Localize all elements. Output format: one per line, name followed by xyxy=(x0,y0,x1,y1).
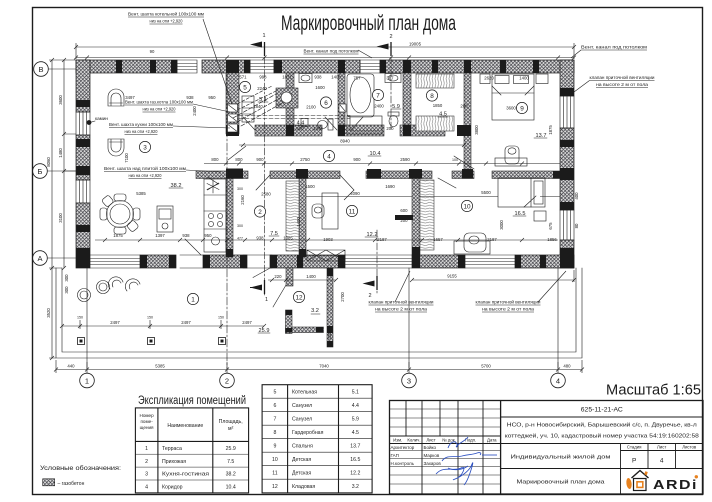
svg-text:3800: 3800 xyxy=(474,125,479,135)
svg-text:1400: 1400 xyxy=(306,274,316,279)
svg-text:1440: 1440 xyxy=(313,126,323,131)
svg-text:3100: 3100 xyxy=(58,213,63,223)
svg-text:3600: 3600 xyxy=(58,95,63,105)
svg-text:7: 7 xyxy=(273,417,276,423)
svg-text:571: 571 xyxy=(239,75,247,80)
svg-text:Масштаб 1:65: Масштаб 1:65 xyxy=(606,383,701,399)
svg-text:Лист: Лист xyxy=(657,445,666,450)
svg-text:НСО, р-н Новосибирский, Барыше: НСО, р-н Новосибирский, Барышевский с/с,… xyxy=(507,422,697,429)
svg-text:камин: камин xyxy=(95,116,108,121)
svg-text:1856: 1856 xyxy=(547,237,557,242)
svg-text:Котельная: Котельная xyxy=(292,390,317,396)
svg-text:4.5: 4.5 xyxy=(439,112,447,118)
svg-text:10.4: 10.4 xyxy=(226,485,236,491)
svg-text:1: 1 xyxy=(145,446,148,452)
svg-text:Листов: Листов xyxy=(682,445,697,450)
svg-text:1600: 1600 xyxy=(315,85,325,90)
svg-text:Вент. шахта над плитой 100х100: Вент. шахта над плитой 100х100 мм xyxy=(104,165,186,171)
svg-text:300: 300 xyxy=(237,187,243,191)
svg-text:800: 800 xyxy=(235,157,243,162)
svg-text:80: 80 xyxy=(574,223,579,228)
svg-text:Кухня-гостиная: Кухня-гостиная xyxy=(162,472,209,478)
svg-text:200: 200 xyxy=(386,126,394,131)
svg-text:11: 11 xyxy=(349,208,356,215)
svg-text:300: 300 xyxy=(237,224,243,228)
svg-text:4.5: 4.5 xyxy=(352,430,359,436)
svg-text:625-11-21-АС: 625-11-21-АС xyxy=(581,407,623,414)
svg-text:90: 90 xyxy=(150,49,155,54)
svg-text:1: 1 xyxy=(85,376,89,385)
svg-text:600: 600 xyxy=(400,208,408,213)
svg-text:Маркировочный план дома: Маркировочный план дома xyxy=(281,12,456,35)
svg-text:2100: 2100 xyxy=(306,105,316,110)
svg-text:Вент. шахта котельной 100х100: Вент. шахта котельной 100х100 мм xyxy=(128,11,204,17)
svg-text:Терраса: Терраса xyxy=(162,446,182,452)
svg-text:200: 200 xyxy=(400,218,408,223)
svg-text:2: 2 xyxy=(258,209,262,216)
svg-text:7100: 7100 xyxy=(124,153,129,163)
svg-text:5.9: 5.9 xyxy=(352,417,359,423)
svg-text:4090: 4090 xyxy=(350,191,360,196)
svg-text:19005: 19005 xyxy=(409,42,422,47)
svg-text:8: 8 xyxy=(273,430,276,436)
svg-text:ARDi: ARDi xyxy=(653,478,698,492)
svg-text:Р: Р xyxy=(632,458,636,465)
svg-text:Захаров: Захаров xyxy=(424,461,442,466)
svg-text:1085: 1085 xyxy=(283,236,293,241)
svg-text:Детская: Детская xyxy=(292,457,311,463)
svg-text:300: 300 xyxy=(64,274,69,282)
svg-text:13.7: 13.7 xyxy=(350,444,360,450)
svg-text:2497: 2497 xyxy=(181,320,191,325)
svg-text:Изм.: Изм. xyxy=(393,438,402,443)
svg-text:387: 387 xyxy=(386,76,394,81)
svg-text:150: 150 xyxy=(218,316,224,320)
svg-text:3000: 3000 xyxy=(499,220,504,230)
svg-text:Дата: Дата xyxy=(487,438,497,443)
svg-text:500: 500 xyxy=(296,126,304,131)
svg-text:В: В xyxy=(38,65,43,74)
svg-text:низ на отм +2,920: низ на отм +2,920 xyxy=(150,19,183,24)
svg-text:2240: 2240 xyxy=(257,86,267,91)
svg-text:низ на отм +2,920: низ на отм +2,920 xyxy=(125,129,158,134)
svg-text:1871: 1871 xyxy=(282,75,292,80)
svg-text:1400: 1400 xyxy=(296,217,301,227)
svg-text:Санузел: Санузел xyxy=(292,403,312,409)
svg-text:4: 4 xyxy=(556,376,560,385)
svg-text:4: 4 xyxy=(145,485,148,491)
svg-text:Б: Б xyxy=(38,167,43,176)
svg-text:на высоте 2 м от пола: на высоте 2 м от пола xyxy=(596,82,648,87)
svg-text:1903: 1903 xyxy=(323,237,333,242)
svg-text:1875: 1875 xyxy=(548,125,553,135)
svg-text:2497: 2497 xyxy=(242,320,252,325)
svg-text:клапан приточной вентиляции: клапан приточной вентиляции xyxy=(590,74,655,80)
svg-text:950: 950 xyxy=(208,95,216,100)
svg-text:– газобетон: – газобетон xyxy=(58,481,85,487)
svg-text:938: 938 xyxy=(256,236,264,241)
svg-text:3: 3 xyxy=(145,472,148,478)
svg-text:7040: 7040 xyxy=(319,364,329,369)
svg-text:9155: 9155 xyxy=(447,274,457,279)
svg-text:2160: 2160 xyxy=(240,195,245,205)
svg-text:3.2: 3.2 xyxy=(352,484,359,490)
svg-text:12: 12 xyxy=(272,484,278,490)
svg-text:1: 1 xyxy=(265,297,268,303)
svg-text:на высоте 2 м от пола: на высоте 2 м от пола xyxy=(482,307,534,312)
svg-text:поме-: поме- xyxy=(140,419,153,424)
svg-text:Кладовая: Кладовая xyxy=(292,484,315,490)
svg-text:480: 480 xyxy=(563,364,571,369)
svg-text:2700: 2700 xyxy=(340,292,345,302)
svg-text:Маркировочный план дома: Маркировочный план дома xyxy=(517,479,605,486)
svg-text:Вент. канал под потолком: Вент. канал под потолком xyxy=(581,45,647,50)
svg-text:2: 2 xyxy=(389,34,392,40)
svg-text:1875: 1875 xyxy=(113,233,123,238)
svg-text:1657: 1657 xyxy=(433,237,443,242)
svg-text:на высоте 2 м от пола: на высоте 2 м от пола xyxy=(375,307,427,312)
svg-text:Лист: Лист xyxy=(426,438,435,443)
svg-text:2: 2 xyxy=(368,293,371,299)
svg-text:900: 900 xyxy=(353,157,361,162)
svg-text:150: 150 xyxy=(77,316,83,320)
svg-text:Спальня: Спальня xyxy=(292,444,313,450)
svg-text:2: 2 xyxy=(145,459,148,465)
svg-text:Прихожая: Прихожая xyxy=(162,459,186,465)
svg-text:клапан приточной вентиляции: клапан приточной вентиляции xyxy=(476,299,541,305)
svg-text:ГАП: ГАП xyxy=(391,453,399,458)
svg-text:м²: м² xyxy=(228,426,234,432)
svg-text:900: 900 xyxy=(256,157,264,162)
svg-text:1480: 1480 xyxy=(58,148,63,158)
svg-text:938: 938 xyxy=(182,233,190,238)
svg-text:А: А xyxy=(37,254,42,263)
svg-text:7.5: 7.5 xyxy=(227,459,234,465)
svg-text:5385: 5385 xyxy=(155,364,165,369)
svg-text:9: 9 xyxy=(273,444,276,450)
svg-text:150: 150 xyxy=(147,316,153,320)
svg-text:2590: 2590 xyxy=(400,157,410,162)
svg-text:9: 9 xyxy=(520,105,524,112)
svg-text:220: 220 xyxy=(274,274,282,279)
svg-text:1840: 1840 xyxy=(253,104,263,109)
svg-text:5.1: 5.1 xyxy=(352,390,359,396)
svg-text:5500: 5500 xyxy=(481,190,491,195)
svg-text:Бойко: Бойко xyxy=(424,444,437,450)
svg-text:Коридор: Коридор xyxy=(162,485,183,491)
svg-text:200: 200 xyxy=(460,104,468,109)
svg-text:4: 4 xyxy=(660,458,664,465)
svg-text:4.4: 4.4 xyxy=(352,403,359,409)
svg-text:1850: 1850 xyxy=(433,103,443,108)
svg-text:Н.контроль: Н.контроль xyxy=(391,461,415,466)
svg-text:5: 5 xyxy=(243,84,247,91)
svg-text:2187: 2187 xyxy=(487,237,497,242)
svg-text:2400: 2400 xyxy=(192,106,197,116)
svg-text:Санузел: Санузел xyxy=(292,417,312,423)
svg-text:477: 477 xyxy=(237,237,243,241)
svg-text:998: 998 xyxy=(259,75,267,80)
svg-text:1: 1 xyxy=(262,33,265,39)
svg-text:2620: 2620 xyxy=(484,76,494,81)
svg-text:12: 12 xyxy=(295,294,303,301)
svg-text:8: 8 xyxy=(430,93,434,100)
svg-text:Марков: Марков xyxy=(424,453,440,458)
svg-text:220: 220 xyxy=(327,332,332,340)
svg-text:25.9: 25.9 xyxy=(226,446,236,452)
svg-text:1397: 1397 xyxy=(155,233,165,238)
svg-text:38.2: 38.2 xyxy=(226,472,236,478)
svg-text:938: 938 xyxy=(314,75,322,80)
svg-text:5385: 5385 xyxy=(136,191,146,196)
svg-text:757: 757 xyxy=(353,76,361,81)
svg-text:3.2: 3.2 xyxy=(311,308,319,314)
svg-text:675: 675 xyxy=(548,222,553,230)
svg-text:11: 11 xyxy=(272,471,277,477)
svg-text:Наименование: Наименование xyxy=(167,423,203,429)
svg-text:440: 440 xyxy=(67,364,75,369)
svg-text:10: 10 xyxy=(272,457,278,463)
svg-text:Гардеробная: Гардеробная xyxy=(292,430,324,436)
svg-text:100: 100 xyxy=(452,158,458,162)
svg-text:1: 1 xyxy=(191,296,195,303)
svg-text:8060: 8060 xyxy=(46,157,51,167)
svg-text:3: 3 xyxy=(143,144,147,151)
svg-text:низ на отм +2,920: низ на отм +2,920 xyxy=(129,173,162,178)
svg-text:Детская: Детская xyxy=(292,471,311,477)
svg-text:2187: 2187 xyxy=(377,237,387,242)
svg-text:1500: 1500 xyxy=(305,184,315,189)
svg-text:6: 6 xyxy=(324,100,328,107)
svg-text:16.5: 16.5 xyxy=(350,457,360,463)
svg-text:клапан приточной вентиляции: клапан приточной вентиляции xyxy=(369,299,434,305)
svg-text:4: 4 xyxy=(327,153,331,160)
svg-text:Вент. канал под потолком: Вент. канал под потолком xyxy=(304,49,359,54)
svg-text:Стадия: Стадия xyxy=(627,445,642,450)
svg-text:3520: 3520 xyxy=(46,308,51,318)
svg-text:щения: щения xyxy=(140,425,154,430)
svg-text:Вент. шахта кухни 100х100 мм: Вент. шахта кухни 100х100 мм xyxy=(109,122,173,127)
svg-text:Условные обозначения:: Условные обозначения: xyxy=(40,464,121,472)
svg-text:950: 950 xyxy=(204,233,212,238)
svg-text:Колич.: Колич. xyxy=(407,438,420,443)
svg-text:1690: 1690 xyxy=(385,184,395,189)
svg-text:Вент. шахта газ.котла 100х100: Вент. шахта газ.котла 100х100 мм xyxy=(125,100,193,105)
svg-text:Архитектор: Архитектор xyxy=(391,445,415,450)
svg-text:2580: 2580 xyxy=(261,192,271,197)
svg-text:8940: 8940 xyxy=(340,139,350,144)
svg-text:2400: 2400 xyxy=(374,104,384,109)
svg-text:10: 10 xyxy=(463,203,471,210)
svg-text:2750: 2750 xyxy=(300,157,310,162)
svg-text:300: 300 xyxy=(64,286,69,294)
svg-text:2497: 2497 xyxy=(110,320,120,325)
svg-text:6: 6 xyxy=(273,403,276,409)
svg-text:400: 400 xyxy=(574,192,579,200)
svg-text:1400: 1400 xyxy=(331,75,341,80)
svg-text:низ на отм +2,920: низ на отм +2,920 xyxy=(143,107,176,112)
svg-text:7: 7 xyxy=(376,92,380,99)
svg-text:Площадь,: Площадь, xyxy=(219,419,243,425)
svg-text:коттеджей, уч. 10, кадастровый: коттеджей, уч. 10, кадастровый номер уча… xyxy=(505,433,699,440)
svg-text:5: 5 xyxy=(273,390,276,396)
svg-text:5700: 5700 xyxy=(481,364,491,369)
svg-text:3: 3 xyxy=(407,376,411,385)
svg-text:Индивидуальный жилой дом: Индивидуальный жилой дом xyxy=(511,454,611,461)
svg-text:1400: 1400 xyxy=(519,76,529,81)
svg-text:Экспликация помещений: Экспликация помещений xyxy=(138,395,246,407)
svg-text:2: 2 xyxy=(225,376,229,385)
svg-text:Номер: Номер xyxy=(140,413,155,418)
svg-text:3600: 3600 xyxy=(506,106,516,111)
svg-text:800: 800 xyxy=(211,157,219,162)
svg-text:12.2: 12.2 xyxy=(350,471,360,477)
